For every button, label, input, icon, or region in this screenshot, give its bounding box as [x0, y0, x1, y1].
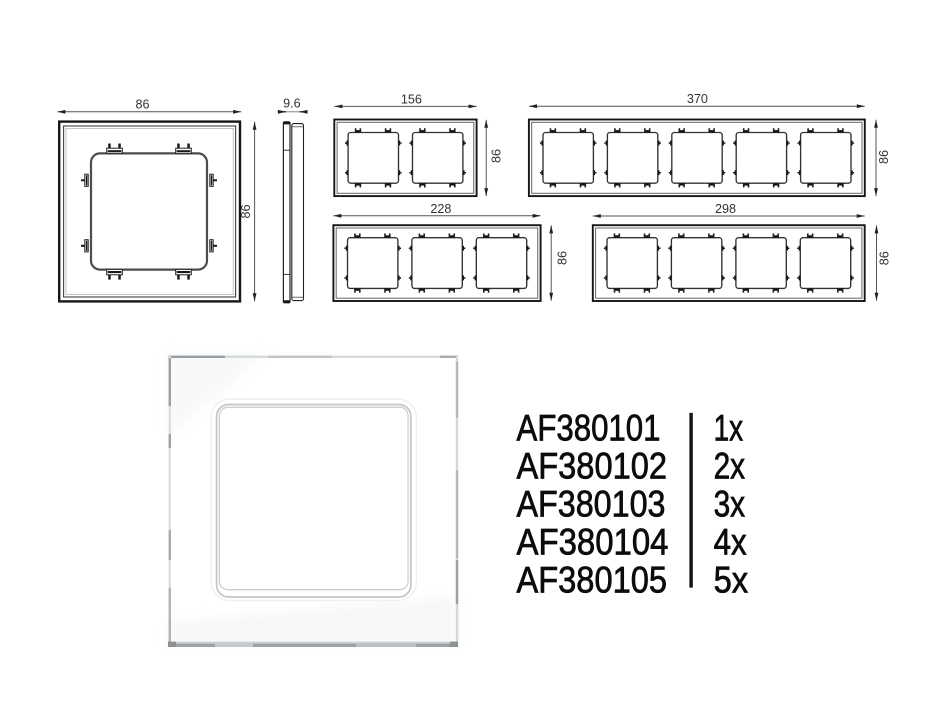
svg-text:9.6: 9.6	[283, 97, 301, 111]
svg-text:86: 86	[555, 251, 569, 265]
svg-text:156: 156	[401, 92, 422, 106]
svg-text:1x: 1x	[714, 407, 744, 448]
svg-text:AF380105: AF380105	[517, 559, 668, 600]
svg-text:86: 86	[490, 149, 504, 163]
svg-text:5x: 5x	[714, 559, 749, 600]
svg-text:228: 228	[430, 202, 451, 216]
svg-text:86: 86	[877, 251, 891, 265]
svg-text:4x: 4x	[714, 521, 747, 562]
svg-text:2x: 2x	[714, 445, 746, 486]
svg-text:370: 370	[687, 92, 708, 106]
svg-text:AF380102: AF380102	[517, 445, 668, 486]
svg-text:298: 298	[715, 202, 736, 216]
svg-text:86: 86	[135, 98, 149, 112]
svg-text:86: 86	[239, 204, 253, 218]
svg-text:AF380104: AF380104	[517, 521, 669, 562]
svg-text:AF380101: AF380101	[517, 407, 661, 448]
svg-text:86: 86	[877, 150, 891, 164]
svg-text:3x: 3x	[714, 483, 746, 524]
svg-text:AF380103: AF380103	[517, 483, 666, 524]
